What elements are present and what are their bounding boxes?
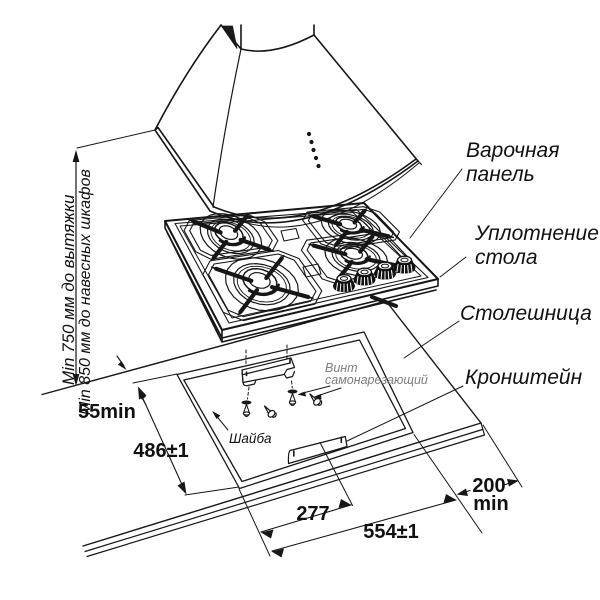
svg-text:277: 277 [296, 503, 329, 525]
svg-text:Min 750 мм до вытяжки: Min 750 мм до вытяжки [59, 194, 78, 385]
svg-text:Столешница: Столешница [460, 302, 592, 325]
svg-text:Кронштейн: Кронштейн [465, 366, 583, 389]
svg-text:Min 850 мм до навесных шкафов: Min 850 мм до навесных шкафов [77, 169, 94, 415]
svg-text:55min: 55min [78, 401, 136, 423]
svg-text:Варочная: Варочная [466, 139, 559, 162]
svg-text:486±1: 486±1 [133, 440, 188, 462]
svg-text:Уплотнение: Уплотнение [474, 222, 599, 245]
svg-text:554±1: 554±1 [363, 521, 418, 543]
svg-text:панель: панель [466, 163, 535, 186]
svg-text:стола: стола [475, 246, 538, 269]
svg-text:min: min [473, 493, 509, 515]
svg-text:самонарезающий: самонарезающий [325, 373, 428, 387]
svg-text:Шайба: Шайба [229, 431, 272, 446]
